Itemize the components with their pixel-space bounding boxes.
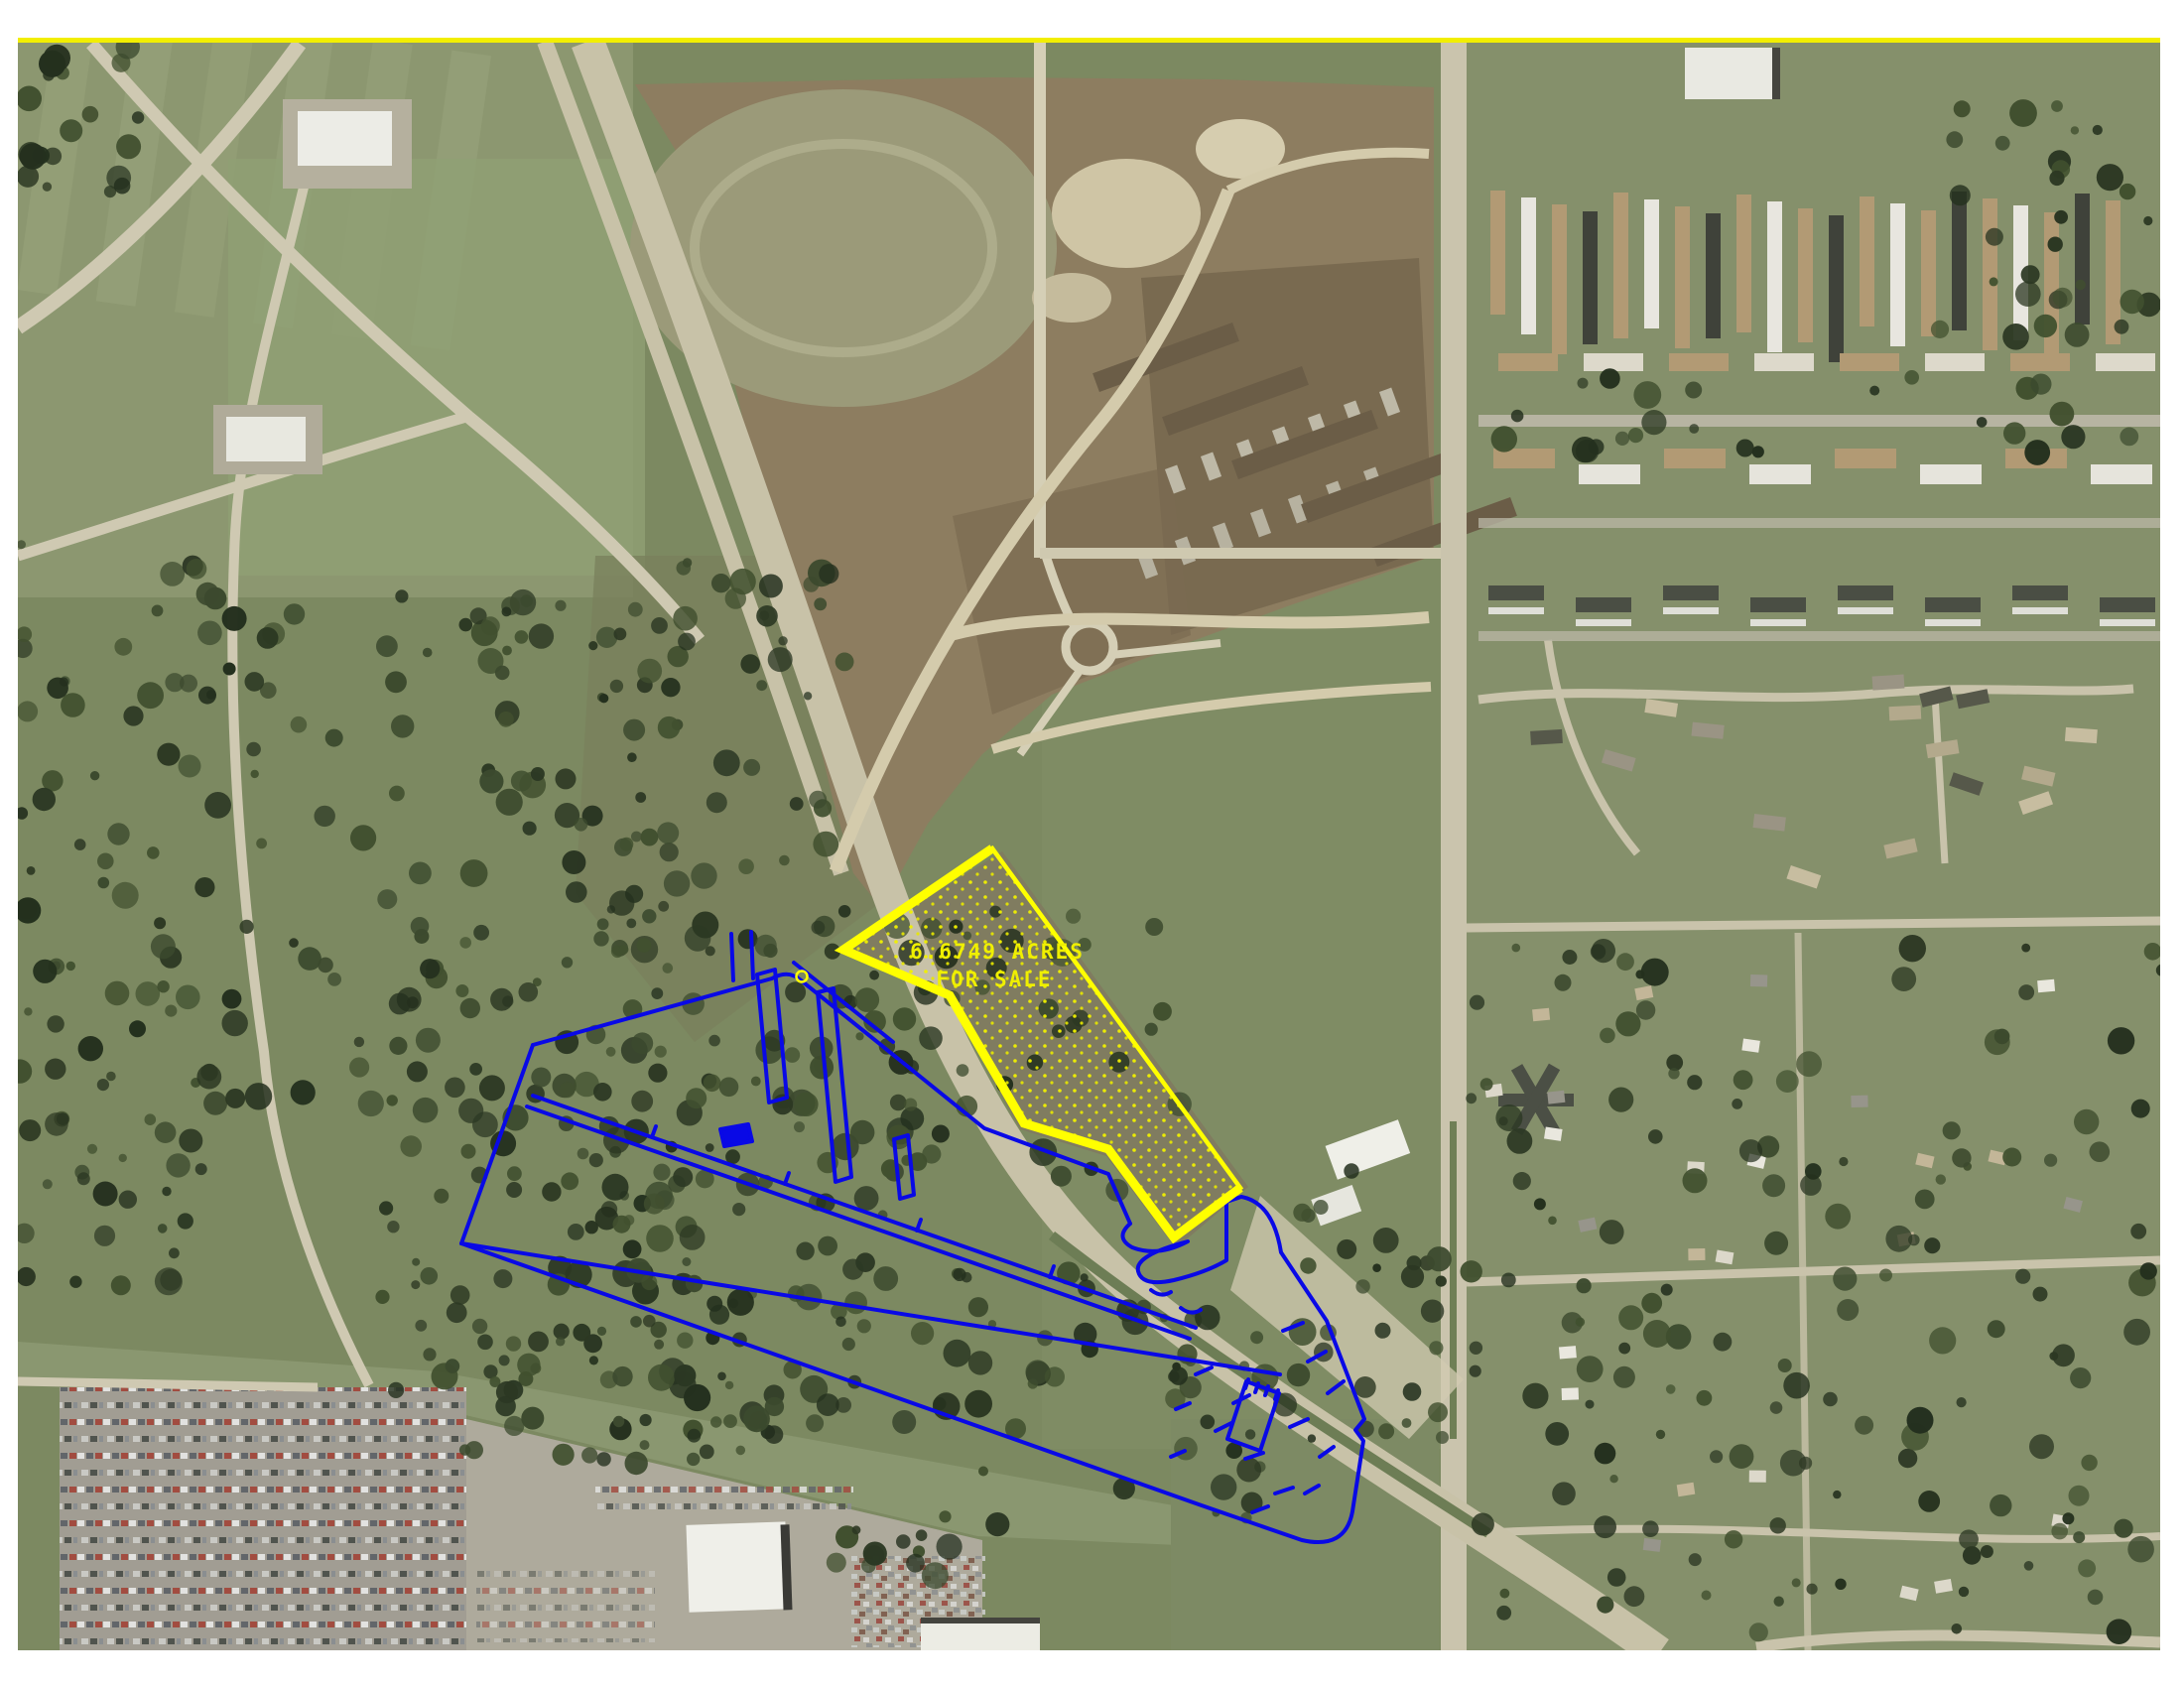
aerial-map: 6.6749 ACRES FOR SALE	[0, 0, 2184, 1688]
parcel-acreage-label: 6.6749 ACRES	[910, 940, 1085, 964]
map-top-border	[18, 38, 2160, 43]
aerial-map-page: 6.6749 ACRES FOR SALE	[0, 0, 2184, 1688]
aerial-imagery	[8, 0, 2168, 1653]
parcel-for-sale-label: FOR SALE	[936, 968, 1052, 991]
